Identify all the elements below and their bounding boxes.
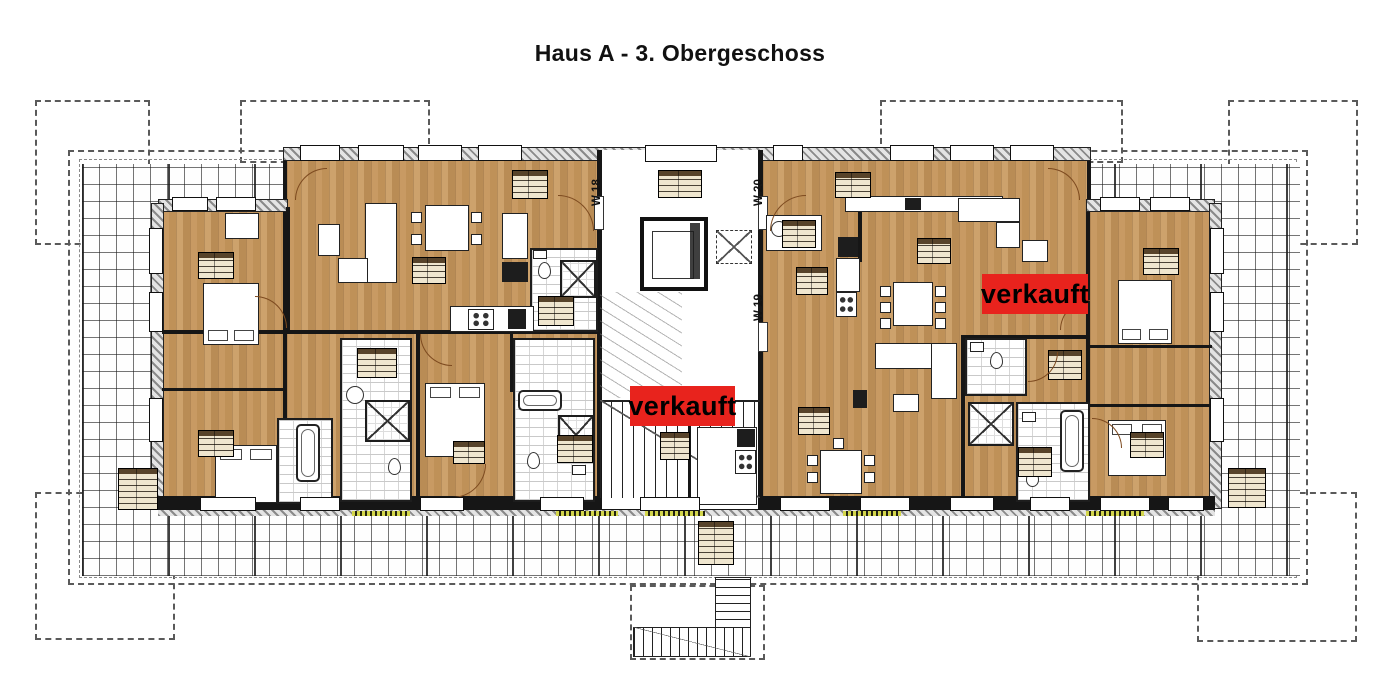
window [860,497,910,511]
toilet [388,458,401,475]
balcony-door [640,497,700,511]
chair [411,234,422,245]
info-table [198,430,234,457]
info-table [660,432,690,460]
tv-board [853,390,867,408]
info-table [453,441,485,464]
sold-badge-center: verkauft [630,386,735,426]
partition [1089,404,1212,407]
kitchen-appliance [737,429,755,447]
sofa [365,203,397,283]
toilet [990,352,1003,369]
stairwell-window [645,145,717,162]
elevator-car [652,231,694,279]
window [149,398,163,442]
sink [1022,412,1036,422]
stove [468,309,494,330]
balcony-door [540,497,584,511]
chair [807,472,818,483]
chair [471,234,482,245]
window [890,145,934,161]
bed [1118,280,1172,344]
smoke-vent-shaft [716,230,752,264]
toilet [538,262,551,279]
coffee-table [318,224,340,256]
threshold [352,511,410,516]
window [216,197,256,211]
info-table [357,348,397,378]
kitchen-counter [502,213,528,259]
chair [411,212,422,223]
info-table [917,238,951,264]
balcony-door [1100,497,1150,511]
chair [935,286,946,297]
coffee-table [1022,240,1048,262]
threshold [645,511,705,516]
window [1210,228,1224,274]
window [172,197,208,211]
dining-table [425,205,469,251]
window [200,497,256,511]
sofa [931,343,957,399]
unit-label-w20: W 20 [753,166,765,206]
info-table [1018,447,1052,477]
external-stairs-cut-line [633,627,751,657]
bathtub [296,424,320,482]
sofa [996,222,1020,248]
pillow [208,330,228,341]
chair [833,438,844,449]
washing-machine [346,386,364,404]
chair [880,318,891,329]
toilet [527,452,540,469]
threshold [556,511,618,516]
external-stairs-upper-run [715,577,751,629]
chair [807,455,818,466]
shower [365,400,410,442]
info-table [1130,432,1164,458]
page-title: Haus A - 3. Obergeschoss [400,40,960,67]
pillow [1122,329,1141,340]
window [300,145,340,161]
window [1210,292,1224,332]
pillow [459,387,480,398]
info-table-terrace [118,468,158,510]
shower [560,260,596,298]
info-table [512,170,548,199]
stove [735,450,756,474]
threshold [843,511,901,516]
partition [416,332,420,504]
pillow [1149,329,1168,340]
window [418,145,462,161]
chair [935,302,946,313]
balcony-door [780,497,830,511]
unit-label-w18: W 18 [591,166,603,206]
partition [162,388,286,391]
window [149,292,163,332]
door-w19 [758,322,768,352]
info-table [798,407,830,435]
sink [970,342,984,352]
stair-winders [600,292,682,398]
window [358,145,404,161]
sink [572,465,586,475]
chair [864,455,875,466]
info-table-terrace [1228,468,1266,508]
window [300,497,340,511]
bathtub [518,390,562,411]
window [1100,197,1140,211]
kitchen-counter [836,258,860,292]
window [1010,145,1054,161]
threshold [1086,511,1144,516]
chair [880,286,891,297]
sink [533,250,547,259]
info-table [538,296,574,326]
kitchen-appliance [905,198,921,210]
kitchen-sink-unit [838,237,858,257]
partition [286,207,290,332]
chair [880,302,891,313]
kitchen-sink-unit [508,309,526,329]
window [1168,497,1204,511]
window [149,228,163,274]
sofa [958,198,1020,222]
elevator-counterweight [690,223,700,279]
bathtub [1060,410,1084,472]
pillow [234,330,254,341]
balcony-door [420,497,464,511]
pillow [250,449,272,460]
window [1210,398,1224,442]
info-table [557,435,593,463]
stove [836,292,857,317]
window [1030,497,1070,511]
info-table [835,172,871,198]
sofa [338,258,368,283]
pillow [430,387,451,398]
unit-label-w19: W 19 [753,281,765,321]
info-table [412,257,446,284]
kitchen-appliance [502,262,528,282]
elevator [640,217,708,291]
floorplan-canvas: Haus A - 3. Obergeschoss [0,0,1374,700]
window [1150,197,1190,211]
sold-badge-right: verkauft [982,274,1088,314]
window [950,497,994,511]
window [950,145,994,161]
info-table-stairwell [658,170,702,198]
bed [203,283,259,345]
info-table [198,252,234,279]
window [478,145,522,161]
info-table [1143,248,1179,275]
info-table-terrace [698,521,734,565]
chair [935,318,946,329]
dining-table [893,282,933,326]
info-table [796,267,828,295]
chair [471,212,482,223]
side-table [893,394,919,412]
wardrobe [225,213,259,239]
dining-table [820,450,862,494]
shower [968,402,1014,446]
partition [1089,345,1212,348]
window [773,145,803,161]
chair [864,472,875,483]
